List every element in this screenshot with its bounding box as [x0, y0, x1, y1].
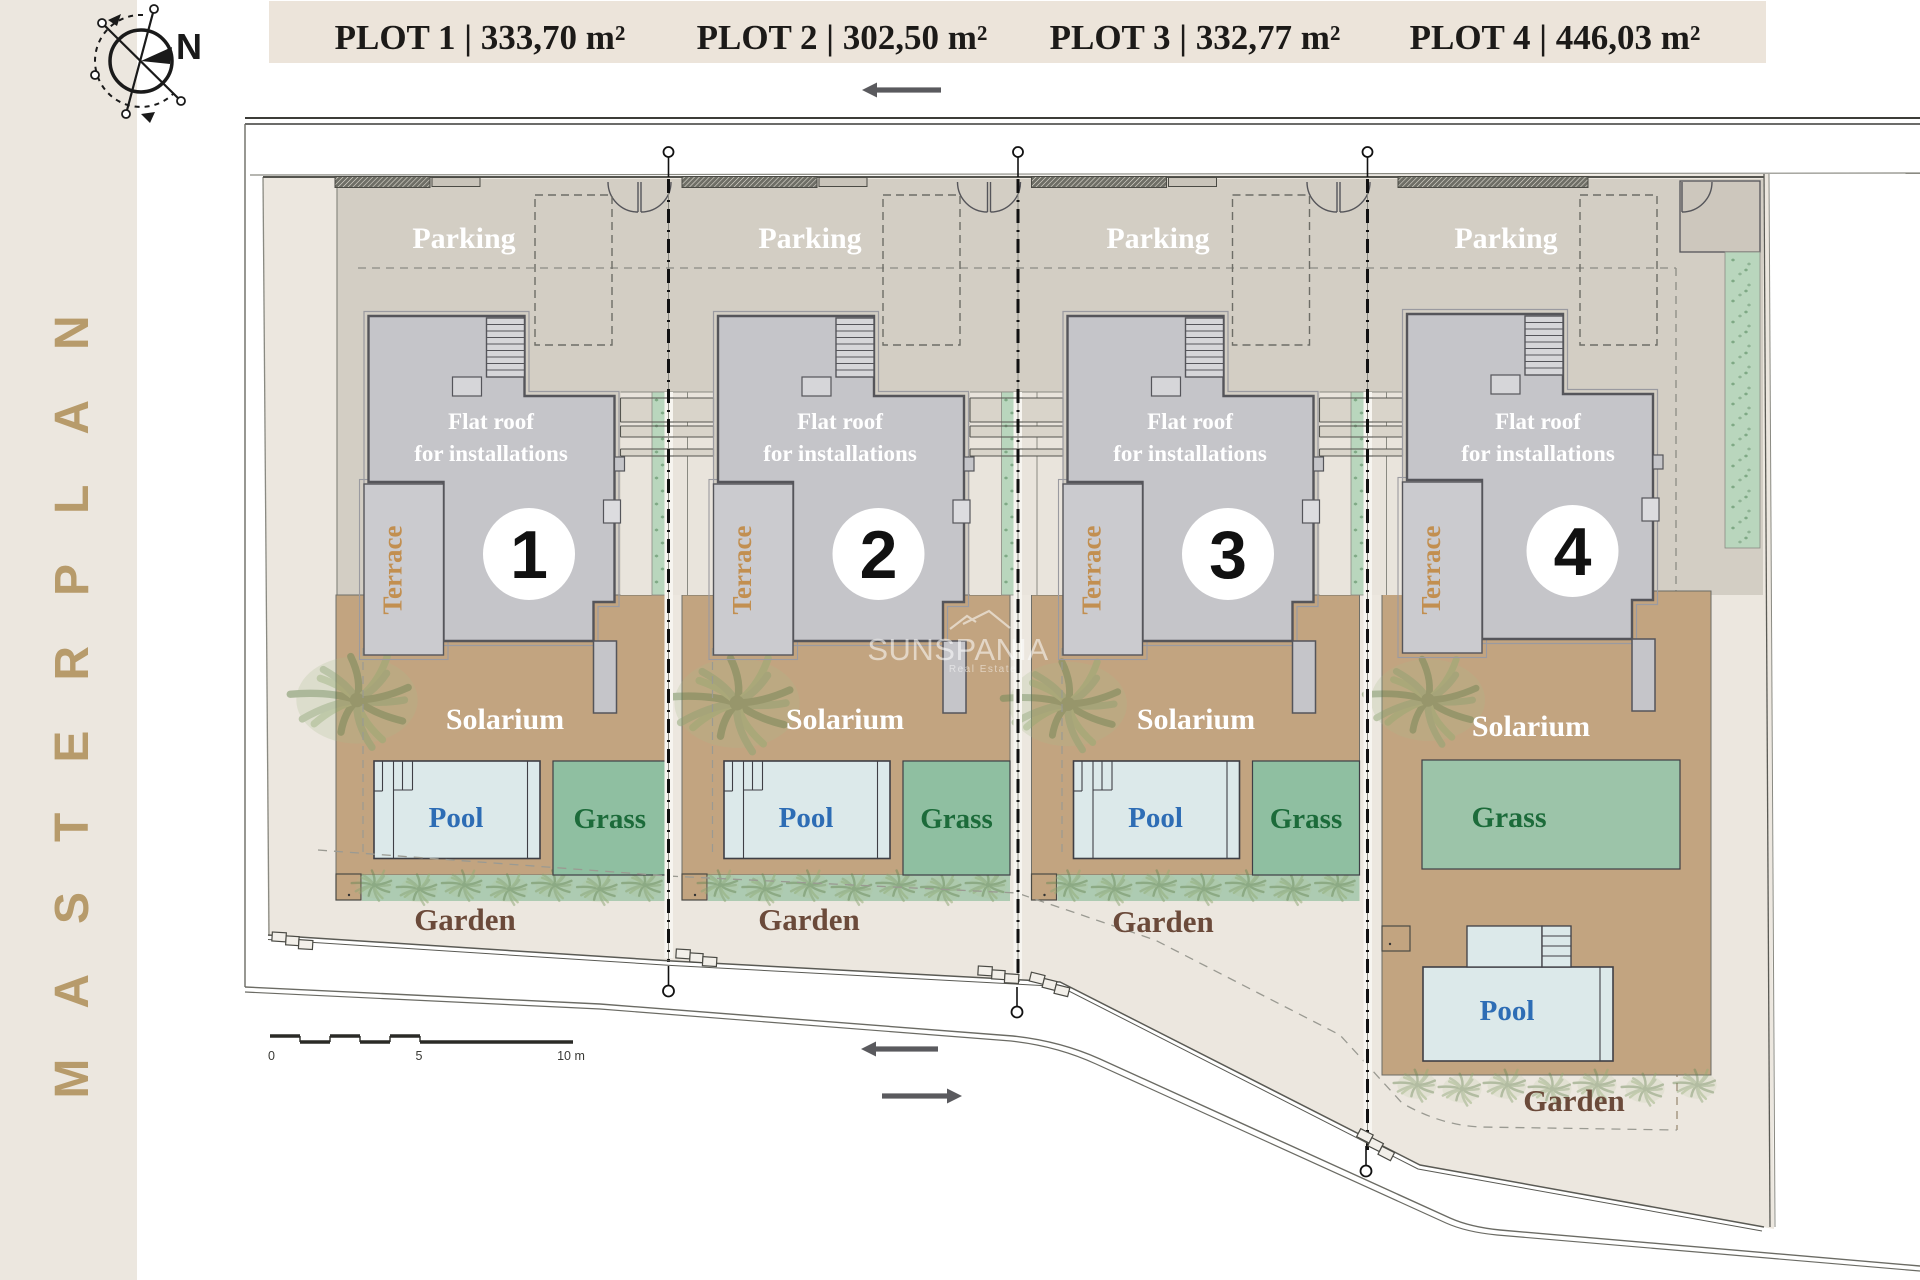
svg-text:Parking: Parking [1454, 222, 1557, 255]
svg-text:Flat roof: Flat roof [1495, 409, 1581, 434]
svg-text:Terrace: Terrace [727, 526, 757, 615]
svg-text:Grass: Grass [1472, 801, 1547, 834]
svg-text:Garden: Garden [758, 902, 860, 937]
svg-text:Solarium: Solarium [1137, 703, 1255, 736]
svg-text:Solarium: Solarium [1472, 710, 1590, 743]
svg-text:N: N [176, 26, 202, 67]
svg-text:Solarium: Solarium [786, 703, 904, 736]
svg-text:PLOT 2 | 302,50 m²: PLOT 2 | 302,50 m² [697, 18, 988, 57]
svg-text:Garden: Garden [1523, 1083, 1625, 1118]
svg-text:0: 0 [268, 1049, 275, 1063]
svg-text:for installations: for installations [1461, 441, 1615, 466]
svg-text:for installations: for installations [1113, 441, 1267, 466]
svg-text:Pool: Pool [1128, 802, 1183, 834]
svg-text:Parking: Parking [758, 222, 861, 255]
svg-text:Garden: Garden [414, 902, 516, 937]
svg-text:Terrace: Terrace [1077, 526, 1107, 615]
svg-text:Solarium: Solarium [446, 703, 564, 736]
svg-text:Terrace: Terrace [378, 526, 408, 615]
svg-text:3: 3 [1209, 517, 1247, 593]
svg-text:MASTERPLAN: MASTERPLAN [46, 265, 99, 1098]
svg-text:for installations: for installations [763, 441, 917, 466]
svg-text:Garden: Garden [1112, 904, 1214, 939]
svg-text:2: 2 [860, 517, 898, 593]
svg-text:PLOT 1 | 333,70 m²: PLOT 1 | 333,70 m² [335, 18, 626, 57]
svg-text:Grass: Grass [1270, 803, 1343, 835]
svg-text:Pool: Pool [1480, 995, 1535, 1027]
svg-text:Flat roof: Flat roof [448, 409, 534, 434]
svg-text:Grass: Grass [920, 803, 993, 835]
svg-text:10 m: 10 m [557, 1049, 585, 1063]
svg-text:SUNSPANIA: SUNSPANIA [867, 632, 1048, 667]
svg-text:4: 4 [1554, 514, 1592, 590]
svg-text:Real Estate: Real Estate [949, 664, 1017, 675]
svg-text:for installations: for installations [414, 441, 568, 466]
svg-text:Parking: Parking [1106, 222, 1209, 255]
svg-text:PLOT 4 | 446,03 m²: PLOT 4 | 446,03 m² [1410, 18, 1701, 57]
svg-text:Flat roof: Flat roof [1147, 409, 1233, 434]
svg-text:Pool: Pool [779, 802, 834, 834]
svg-text:Pool: Pool [429, 802, 484, 834]
svg-text:Terrace: Terrace [1416, 526, 1446, 615]
svg-text:PLOT 3 | 332,77 m²: PLOT 3 | 332,77 m² [1050, 18, 1341, 57]
svg-text:1: 1 [510, 517, 548, 593]
svg-text:5: 5 [416, 1049, 423, 1063]
svg-text:Parking: Parking [412, 222, 515, 255]
svg-text:Grass: Grass [574, 803, 647, 835]
svg-text:Flat roof: Flat roof [797, 409, 883, 434]
